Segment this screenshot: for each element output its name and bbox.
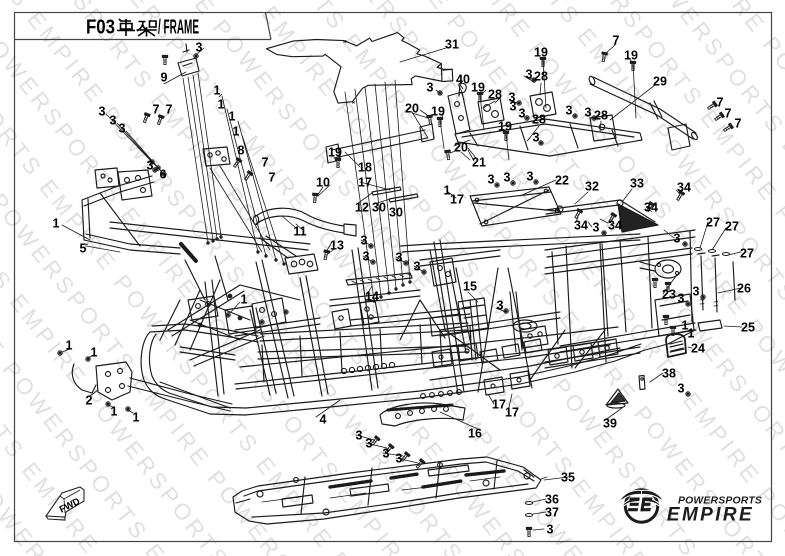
svg-text:3: 3 — [678, 382, 685, 396]
svg-text:1: 1 — [241, 293, 248, 307]
svg-text:19: 19 — [471, 81, 485, 95]
svg-text:17: 17 — [492, 398, 506, 412]
svg-text:32: 32 — [585, 180, 599, 194]
svg-text:3: 3 — [527, 170, 534, 184]
svg-text:12: 12 — [355, 201, 369, 215]
svg-text:16: 16 — [468, 427, 482, 441]
svg-text:3: 3 — [396, 251, 403, 265]
svg-text:1: 1 — [91, 346, 98, 360]
svg-text:39: 39 — [603, 417, 617, 431]
svg-text:1: 1 — [214, 84, 221, 98]
svg-text:3: 3 — [526, 68, 533, 82]
svg-text:3: 3 — [356, 429, 363, 443]
svg-text:23: 23 — [662, 288, 676, 302]
svg-text:3: 3 — [414, 260, 421, 274]
svg-text:34: 34 — [677, 181, 691, 195]
svg-text:F03: F03 — [86, 17, 115, 39]
svg-text:13: 13 — [330, 239, 344, 253]
svg-text:1: 1 — [53, 217, 60, 231]
svg-text:7: 7 — [717, 96, 724, 110]
svg-text:22: 22 — [555, 174, 569, 188]
svg-text:26: 26 — [737, 282, 751, 296]
svg-text:15: 15 — [463, 280, 477, 294]
svg-text:28: 28 — [594, 109, 608, 123]
svg-text:3: 3 — [533, 131, 540, 145]
svg-text:5: 5 — [80, 242, 87, 256]
svg-text:19: 19 — [498, 120, 512, 134]
svg-text:3: 3 — [585, 106, 592, 120]
svg-text:1: 1 — [688, 327, 695, 341]
svg-text:3: 3 — [678, 292, 685, 306]
svg-text:30: 30 — [372, 201, 386, 215]
svg-text:24: 24 — [691, 342, 705, 356]
svg-text:1: 1 — [218, 98, 225, 112]
svg-text:29: 29 — [653, 75, 667, 89]
svg-text:10: 10 — [316, 176, 330, 190]
svg-text:EMPIRE: EMPIRE — [667, 505, 754, 526]
svg-text:3: 3 — [693, 285, 700, 299]
svg-text:7: 7 — [153, 103, 160, 117]
svg-text:19: 19 — [534, 46, 548, 60]
svg-text:3: 3 — [519, 107, 526, 121]
svg-text:19: 19 — [328, 146, 342, 160]
svg-text:3: 3 — [119, 122, 126, 136]
svg-text:20: 20 — [405, 102, 419, 116]
svg-text:9: 9 — [161, 71, 168, 85]
svg-text:3: 3 — [504, 171, 511, 185]
svg-text:20: 20 — [454, 141, 468, 155]
svg-text:3: 3 — [147, 159, 154, 173]
svg-text:27: 27 — [725, 220, 739, 234]
svg-text:19: 19 — [431, 105, 445, 119]
svg-text:31: 31 — [445, 38, 459, 52]
svg-text:35: 35 — [561, 471, 575, 485]
svg-text:3: 3 — [396, 452, 403, 466]
svg-text:6: 6 — [160, 168, 167, 182]
svg-text:3: 3 — [99, 105, 106, 119]
svg-text:17: 17 — [358, 176, 372, 190]
svg-text:7: 7 — [735, 117, 742, 131]
svg-text:1: 1 — [66, 339, 73, 353]
svg-text:18: 18 — [358, 161, 372, 175]
svg-text:17: 17 — [450, 193, 464, 207]
svg-text:7: 7 — [613, 34, 620, 48]
svg-text:4: 4 — [320, 413, 327, 427]
svg-text:11: 11 — [293, 225, 306, 239]
svg-text:7: 7 — [262, 156, 269, 170]
svg-text:3: 3 — [361, 234, 368, 248]
svg-text:34: 34 — [608, 219, 622, 233]
svg-text:7: 7 — [725, 107, 732, 121]
svg-text:21: 21 — [472, 156, 486, 170]
svg-text:37: 37 — [545, 506, 559, 520]
svg-text:1: 1 — [133, 411, 140, 425]
svg-text:3: 3 — [383, 447, 390, 461]
svg-text:36: 36 — [545, 493, 559, 507]
svg-text:7: 7 — [269, 171, 276, 185]
svg-text:14: 14 — [365, 290, 379, 304]
svg-text:3: 3 — [427, 81, 434, 95]
svg-text:3: 3 — [566, 104, 573, 118]
svg-text:27: 27 — [706, 216, 720, 230]
svg-text:19: 19 — [624, 49, 638, 63]
svg-text:3: 3 — [510, 100, 517, 114]
svg-text:3: 3 — [366, 437, 373, 451]
svg-text:1: 1 — [233, 125, 240, 139]
svg-text:3: 3 — [363, 250, 370, 264]
svg-text:3: 3 — [497, 299, 504, 313]
svg-text:28: 28 — [488, 88, 502, 102]
svg-text:/ FRAME: / FRAME — [158, 17, 199, 39]
svg-text:7: 7 — [166, 103, 173, 117]
svg-text:30: 30 — [389, 206, 403, 220]
svg-text:33: 33 — [630, 177, 644, 191]
svg-text:28: 28 — [534, 70, 548, 84]
svg-text:38: 38 — [662, 367, 676, 381]
svg-text:34: 34 — [574, 219, 588, 233]
svg-text:8: 8 — [238, 144, 245, 158]
svg-text:3: 3 — [488, 173, 495, 187]
svg-text:1: 1 — [229, 110, 236, 124]
svg-text:25: 25 — [741, 321, 755, 335]
svg-text:34: 34 — [644, 201, 658, 215]
svg-text:3: 3 — [110, 114, 117, 128]
svg-text:17: 17 — [505, 406, 519, 420]
svg-text:1: 1 — [111, 405, 118, 419]
svg-text:27: 27 — [740, 247, 754, 261]
svg-text:3: 3 — [593, 221, 600, 235]
svg-text:2: 2 — [86, 394, 93, 408]
svg-text:3: 3 — [547, 523, 554, 537]
svg-text:3: 3 — [674, 232, 681, 246]
svg-text:40: 40 — [456, 73, 470, 87]
svg-text:3: 3 — [196, 41, 203, 55]
svg-text:28: 28 — [532, 113, 546, 127]
